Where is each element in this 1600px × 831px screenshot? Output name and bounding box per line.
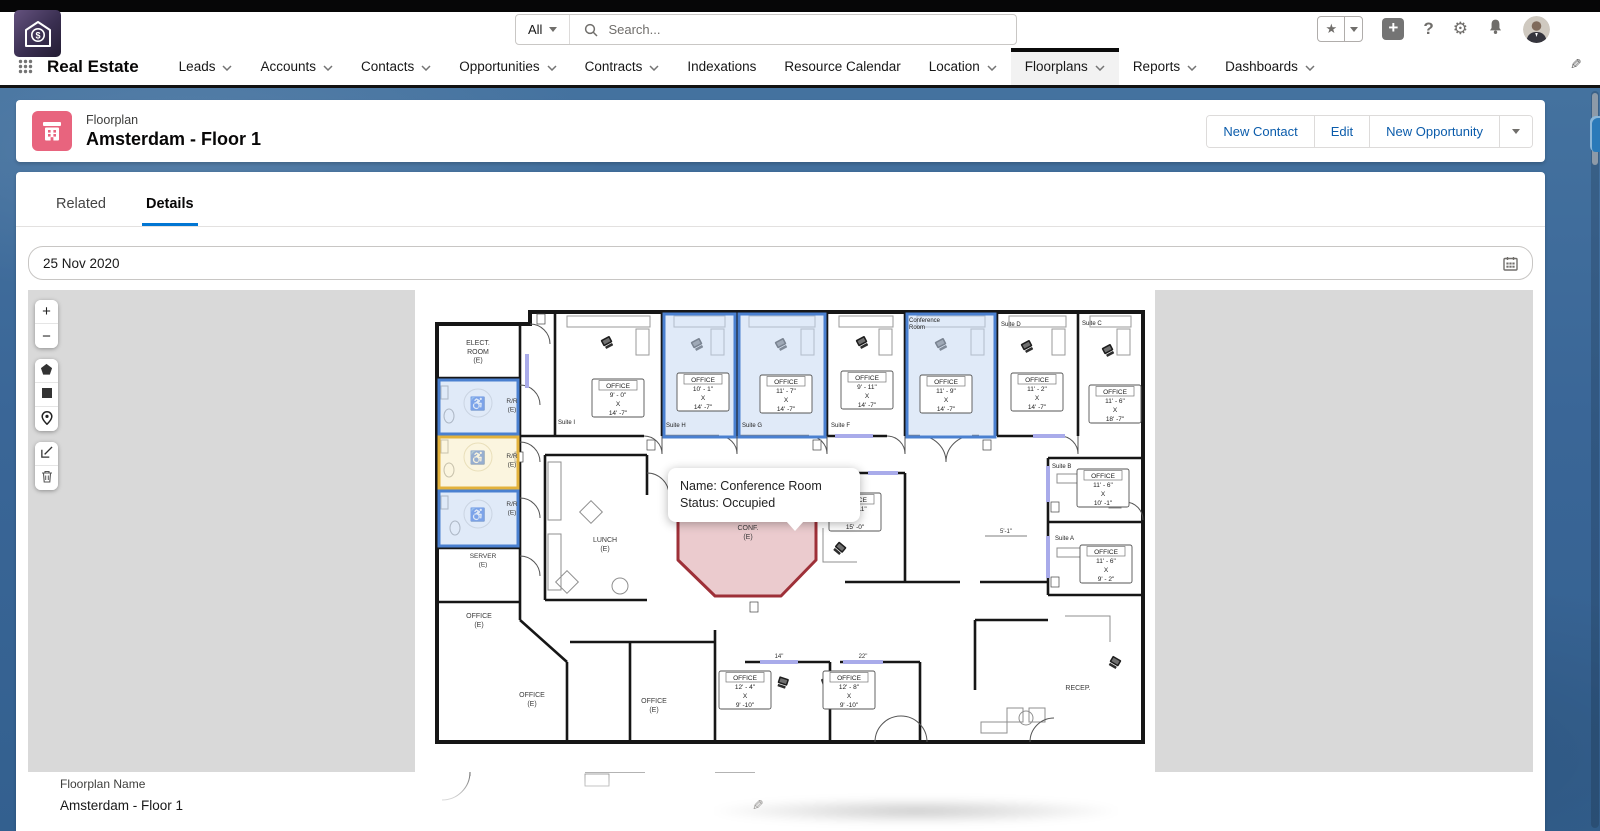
nav-edit-pencil-icon[interactable]: ✎: [1570, 57, 1582, 73]
svg-text:11' - 6": 11' - 6": [1093, 482, 1113, 489]
canvas-margin-right: [1155, 290, 1533, 772]
floorplan-name-field: Floorplan Name Amsterdam - Floor 1: [60, 777, 183, 813]
nav-tab-contacts[interactable]: Contacts: [347, 48, 445, 85]
calendar-icon[interactable]: [1503, 256, 1518, 271]
record-action-buttons: New ContactEditNew Opportunity: [1206, 115, 1533, 148]
svg-text:9' - 2": 9' - 2": [1098, 576, 1115, 583]
svg-text:X: X: [784, 397, 789, 404]
svg-text:X: X: [847, 693, 852, 700]
nav-tab-label: Location: [929, 59, 980, 74]
svg-text:X: X: [743, 693, 748, 700]
room-size-label: OFFICE10' - 1"X14' -7": [677, 373, 729, 411]
record-detail-card: Related Details 25 Nov 2020: [16, 172, 1545, 831]
suite-label: Suite F: [831, 423, 850, 429]
svg-text:14' -7": 14' -7": [1028, 404, 1047, 411]
svg-text:15' -0": 15' -0": [846, 524, 865, 531]
nav-tab-location[interactable]: Location: [915, 48, 1011, 85]
favorites-caret-icon[interactable]: [1345, 17, 1362, 41]
dimension-label: 5'-1": [1000, 529, 1012, 535]
svg-text:12' - 4": 12' - 4": [735, 684, 756, 691]
edit-icon: [40, 446, 53, 462]
room-tooltip: Name: Conference Room Status: Occupied: [668, 468, 860, 522]
tab-related[interactable]: Related: [52, 196, 110, 226]
room-name-label: SERVER: [470, 553, 497, 560]
room-name-label: (E): [600, 546, 609, 553]
chevron-down-icon: [649, 59, 659, 74]
new-opportunity-button[interactable]: New Opportunity: [1370, 116, 1500, 147]
suite-label: Conference: [909, 318, 941, 324]
svg-text:12' - 8": 12' - 8": [839, 684, 860, 691]
global-actions-add-icon[interactable]: +: [1382, 18, 1404, 40]
svg-text:10' -1": 10' -1": [1094, 500, 1113, 507]
room-size-label: OFFICE11' - 2"X14' -7": [1011, 373, 1063, 411]
room-name-label: (E): [473, 358, 482, 365]
svg-text:X: X: [1104, 567, 1109, 574]
room-name-label: LUNCH: [593, 537, 617, 544]
nav-tab-indexations[interactable]: Indexations: [673, 48, 770, 85]
svg-text:14' -7": 14' -7": [858, 402, 877, 409]
notifications-bell-icon[interactable]: [1487, 18, 1504, 40]
room-name-label: OFFICE: [466, 613, 492, 620]
suite-label: Suite A: [1055, 536, 1074, 542]
room-name-label: R/R: [506, 501, 518, 508]
room-size-label: OFFICE12' - 4"X9' -10": [719, 671, 771, 709]
nav-tab-contracts[interactable]: Contracts: [571, 48, 674, 85]
svg-text:18' -7": 18' -7": [1106, 416, 1125, 423]
svg-text:OFFICE: OFFICE: [691, 377, 715, 384]
nav-tab-leads[interactable]: Leads: [165, 48, 247, 85]
suite-label: Suite C: [1082, 321, 1102, 327]
svg-text:9' -10": 9' -10": [840, 702, 859, 709]
svg-text:OFFICE: OFFICE: [837, 675, 861, 682]
nav-tab-label: Contracts: [585, 59, 643, 74]
divider: [569, 15, 570, 44]
restroom-1-highlight[interactable]: [439, 380, 518, 434]
record-header-card: Floorplan Amsterdam - Floor 1 New Contac…: [16, 100, 1545, 162]
chevron-down-icon: [421, 59, 431, 74]
nav-tabs: LeadsAccountsContactsOpportunitiesContra…: [165, 48, 1329, 85]
chevron-down-icon: [1305, 59, 1315, 74]
room-name-label: OFFICE: [519, 692, 545, 699]
room-name-label: (E): [743, 534, 752, 541]
tooltip-status-line: Status: Occupied: [680, 495, 848, 512]
toolbar-group: [35, 442, 58, 490]
room-name-label: CONF.: [738, 525, 759, 532]
svg-text:9' -10": 9' -10": [736, 702, 755, 709]
svg-text:OFFICE: OFFICE: [1091, 473, 1115, 480]
edit-button[interactable]: Edit: [1315, 116, 1370, 147]
rectangle-icon: [41, 387, 53, 402]
room-size-label: OFFICE9' - 0"X14' -7": [592, 379, 644, 417]
svg-text:OFFICE: OFFICE: [934, 379, 958, 386]
svg-text:OFFICE: OFFICE: [1103, 389, 1127, 396]
restroom-3-highlight[interactable]: [439, 491, 518, 546]
room-name-label: (E): [527, 701, 536, 708]
svg-text:X: X: [1113, 407, 1118, 414]
room-name-label: (E): [474, 622, 483, 629]
svg-text:11' - 9": 11' - 9": [936, 388, 956, 395]
search-scope-label: All: [528, 22, 542, 37]
svg-text:10' - 1": 10' - 1": [693, 386, 714, 393]
nav-tab-label: Indexations: [687, 59, 756, 74]
new-contact-button[interactable]: New Contact: [1207, 116, 1314, 147]
global-header: $ All Search... ★ + ? ⚙: [0, 12, 1600, 48]
nav-tab-label: Reports: [1133, 59, 1180, 74]
svg-text:14' -7": 14' -7": [609, 410, 628, 417]
date-row: 25 Nov 2020: [16, 227, 1545, 280]
favorites-star-icon[interactable]: ★: [1318, 17, 1344, 41]
room-name-label: ELECT.: [466, 340, 490, 347]
chevron-down-icon: [323, 59, 333, 74]
svg-text:14' -7": 14' -7": [777, 406, 796, 413]
svg-text:9' - 11": 9' - 11": [857, 384, 877, 391]
drop-shadow: [706, 798, 1126, 824]
nav-tab-label: Floorplans: [1025, 59, 1088, 74]
suite-label: Suite H: [666, 423, 686, 429]
chevron-down-icon: [222, 59, 232, 74]
help-icon[interactable]: ?: [1423, 19, 1433, 39]
svg-text:X: X: [701, 395, 706, 402]
svg-text:$: $: [35, 30, 40, 40]
room-name-label: (E): [508, 509, 517, 516]
svg-text:OFFICE: OFFICE: [774, 379, 798, 386]
edit-tool-button[interactable]: [35, 442, 58, 466]
svg-text:11' - 2": 11' - 2": [1027, 386, 1047, 393]
marker-icon: [41, 411, 53, 428]
nav-tab-label: Dashboards: [1225, 59, 1298, 74]
svg-text:OFFICE: OFFICE: [1025, 377, 1049, 384]
delete-tool-button[interactable]: [35, 466, 58, 490]
field-value: Amsterdam - Floor 1: [60, 798, 183, 813]
date-picker-input[interactable]: 25 Nov 2020: [28, 246, 1533, 280]
svg-text:11' - 7": 11' - 7": [776, 388, 796, 395]
polygon-tool-button[interactable]: [35, 359, 58, 383]
tooltip-name-line: Name: Conference Room: [680, 478, 848, 495]
svg-text:X: X: [1035, 395, 1040, 402]
app-navigation-bar: Real Estate LeadsAccountsContactsOpportu…: [0, 48, 1600, 88]
room-name-label: (E): [508, 461, 517, 468]
nav-tab-accounts[interactable]: Accounts: [246, 48, 347, 85]
room-name-label: (E): [508, 406, 517, 413]
field-label: Floorplan Name: [60, 777, 183, 791]
floorplan-canvas[interactable]: ♿ ♿ ♿: [28, 290, 1533, 772]
floorplan-paper: ♿ ♿ ♿: [415, 290, 1155, 772]
svg-text:14' -7": 14' -7": [937, 406, 956, 413]
tab-details[interactable]: Details: [142, 196, 198, 226]
app-screen: $ All Search... ★ + ? ⚙: [0, 0, 1600, 831]
room-size-label: OFFICE11' - 9"X14' -7": [920, 375, 972, 413]
nav-tab-label: Accounts: [260, 59, 316, 74]
toolbar-group: +−: [35, 300, 58, 348]
zoom-out-icon: −: [42, 329, 51, 344]
room-name-label: R/R: [506, 453, 518, 460]
room-name-label: (E): [479, 561, 488, 568]
search-icon: [584, 23, 598, 37]
building-icon: [40, 119, 64, 143]
canvas-margin-left: [28, 290, 415, 772]
record-meta: Floorplan Amsterdam - Floor 1: [86, 113, 261, 150]
edit-field-pencil-icon[interactable]: ✎: [752, 798, 764, 814]
global-search[interactable]: All Search...: [515, 14, 1017, 45]
zoom-in-icon: +: [42, 304, 51, 319]
app-name: Real Estate: [47, 57, 139, 77]
zoom-out-tool-button[interactable]: −: [35, 324, 58, 348]
toolbar-group: [35, 359, 58, 431]
room-size-label: OFFICE11' - 6"X9' - 2": [1080, 545, 1132, 583]
rectangle-tool-button[interactable]: [35, 383, 58, 407]
room-size-label: OFFICE11' - 7"X14' -7": [760, 375, 812, 413]
nav-tab-resource-calendar[interactable]: Resource Calendar: [770, 48, 914, 85]
record-tabs: Related Details: [16, 172, 1545, 227]
svg-text:11' - 6": 11' - 6": [1105, 398, 1125, 405]
dimension-label: 22": [859, 654, 868, 660]
setup-gear-icon[interactable]: ⚙: [1453, 19, 1468, 39]
map-toolbar: +−: [35, 300, 58, 490]
chevron-down-icon: [987, 59, 997, 74]
date-value: 25 Nov 2020: [43, 256, 120, 271]
room-size-label: OFFICE9' - 11"X14' -7": [841, 371, 893, 409]
room-name-label: RECEP.: [1065, 685, 1090, 692]
suite-label: Suite D: [1001, 322, 1021, 328]
marker-tool-button[interactable]: [35, 407, 58, 431]
chevron-down-icon: [1512, 129, 1520, 134]
nav-tab-reports[interactable]: Reports: [1119, 48, 1211, 85]
delete-icon: [41, 470, 53, 486]
restroom-2-highlight[interactable]: [439, 437, 518, 488]
svg-text:OFFICE: OFFICE: [855, 375, 879, 382]
suite-label: Suite B: [1052, 464, 1071, 470]
suite-label: Room: [909, 325, 925, 331]
room-name-label: ROOM: [467, 349, 489, 356]
nav-tab-label: Opportunities: [459, 59, 539, 74]
svg-text:X: X: [616, 401, 621, 408]
polygon-icon: [40, 363, 53, 379]
nav-tab-opportunities[interactable]: Opportunities: [445, 48, 570, 85]
user-avatar[interactable]: [1523, 16, 1550, 43]
record-entity-label: Floorplan: [86, 113, 261, 127]
app-launcher-icon[interactable]: [18, 59, 33, 74]
favorites-button-group[interactable]: ★: [1317, 16, 1363, 42]
dimension-label: 14": [775, 654, 784, 660]
nav-tab-dashboards[interactable]: Dashboards: [1211, 48, 1329, 85]
nav-tab-label: Resource Calendar: [784, 59, 900, 74]
chevron-down-icon: [547, 59, 557, 74]
svg-text:14' -7": 14' -7": [694, 404, 713, 411]
svg-text:9' - 0": 9' - 0": [610, 392, 627, 399]
svg-text:11' - 6": 11' - 6": [1096, 558, 1116, 565]
search-scope-dropdown[interactable]: All: [516, 15, 569, 44]
more-actions-caret-button[interactable]: [1500, 116, 1532, 147]
chevron-down-icon: [1187, 59, 1197, 74]
nav-tab-floorplans[interactable]: Floorplans: [1011, 48, 1119, 85]
top-black-strip: [0, 0, 1600, 12]
detail-section: Floorplan Name Amsterdam - Floor 1 ✎: [16, 772, 1545, 831]
cutoff-edge-button[interactable]: [1590, 116, 1600, 152]
svg-text:X: X: [865, 393, 870, 400]
header-utility-icons: ★ + ? ⚙: [1317, 14, 1550, 44]
company-logo[interactable]: $: [14, 10, 61, 57]
page-title: Amsterdam - Floor 1: [86, 129, 261, 150]
floorplan-drawing: ♿ ♿ ♿: [415, 290, 1155, 772]
room-size-label: OFFICE11' - 6"X10' -1": [1077, 469, 1129, 507]
page-scrollbar[interactable]: [1591, 91, 1599, 828]
suite-label: Suite G: [742, 423, 762, 429]
room-size-label: OFFICE11' - 6"X18' -7": [1089, 385, 1141, 423]
svg-text:X: X: [944, 397, 949, 404]
svg-text:X: X: [1101, 491, 1106, 498]
room-size-label: OFFICE12' - 8"X9' -10": [823, 671, 875, 709]
suite-label: Suite I: [558, 420, 575, 426]
room-name-label: OFFICE: [641, 698, 667, 705]
svg-text:OFFICE: OFFICE: [733, 675, 757, 682]
floorplan-record-icon: [32, 111, 72, 151]
house-dollar-logo-icon: $: [23, 19, 53, 49]
search-placeholder: Search...: [608, 22, 660, 37]
nav-tab-label: Leads: [179, 59, 216, 74]
svg-text:OFFICE: OFFICE: [606, 383, 630, 390]
chevron-down-icon: [1095, 59, 1105, 74]
zoom-in-tool-button[interactable]: +: [35, 300, 58, 324]
svg-text:OFFICE: OFFICE: [1094, 549, 1118, 556]
office-desks: [567, 316, 1131, 355]
page-background: Floorplan Amsterdam - Floor 1 New Contac…: [0, 88, 1600, 831]
room-name-label: (E): [649, 707, 658, 714]
chevron-down-icon: [549, 27, 557, 32]
room-name-label: R/R: [506, 398, 518, 405]
nav-tab-label: Contacts: [361, 59, 414, 74]
